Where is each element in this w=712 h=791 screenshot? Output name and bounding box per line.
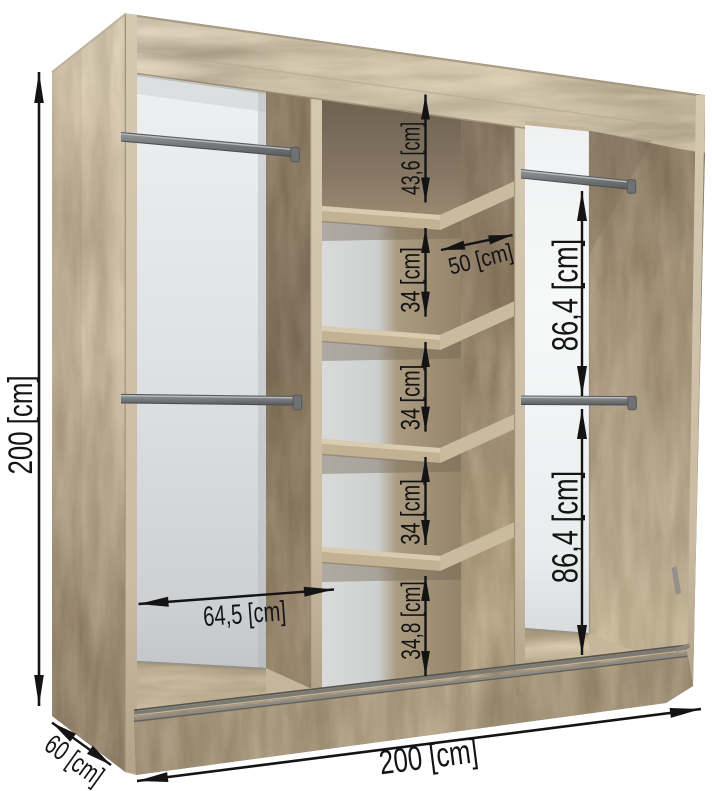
svg-text:64,5 [cm]: 64,5 [cm] — [202, 596, 287, 633]
svg-text:34 [cm]: 34 [cm] — [396, 365, 427, 431]
svg-text:34 [cm]: 34 [cm] — [396, 479, 427, 545]
svg-text:86,4 [cm]: 86,4 [cm] — [545, 471, 586, 584]
svg-text:200 [cm]: 200 [cm] — [377, 733, 480, 782]
svg-text:200 [cm]: 200 [cm] — [3, 375, 40, 474]
svg-text:34 [cm]: 34 [cm] — [396, 247, 427, 313]
svg-text:34,8 [cm]: 34,8 [cm] — [396, 581, 426, 659]
svg-text:43,6 [cm]: 43,6 [cm] — [397, 122, 426, 195]
svg-text:86,4 [cm]: 86,4 [cm] — [545, 239, 586, 352]
